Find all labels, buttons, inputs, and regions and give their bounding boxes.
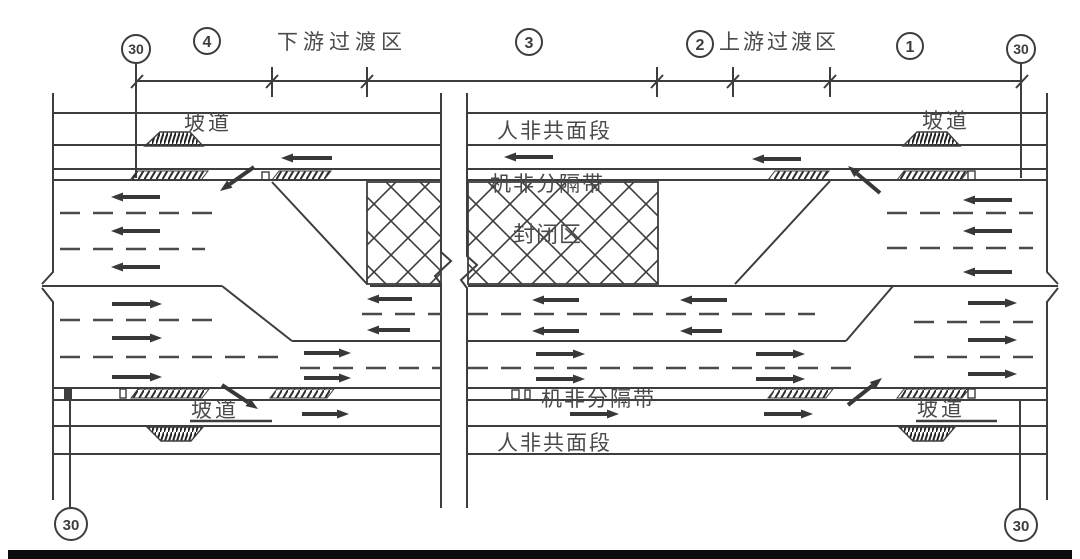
speed-limit-sign-bottom-right: 30 (1005, 509, 1037, 541)
traffic-arrow (857, 174, 880, 193)
traffic-arrow-head (1005, 299, 1017, 308)
svg-text:30: 30 (1013, 518, 1030, 535)
closed-area-taper-downstream (272, 182, 367, 284)
svg-text:30: 30 (128, 41, 144, 57)
svg-text:3: 3 (525, 35, 534, 52)
downstream-transition-label: 下游过渡区 (277, 31, 407, 54)
svg-text:30: 30 (1013, 41, 1029, 57)
traffic-arrow-head (963, 268, 975, 277)
motor-nonmotor-divider-label-top: 机非分隔带 (490, 173, 605, 196)
traffic-arrow-head (793, 350, 805, 359)
ramp-label-top-left: 坡道 (184, 112, 232, 135)
diagram-canvas: 30 4 3 2 1 30 30 30 (0, 0, 1080, 559)
closed-area-label: 封闭区 (513, 222, 582, 247)
svg-text:4: 4 (203, 34, 212, 51)
traffic-arrow-head (532, 296, 544, 305)
traffic-arrow-head (573, 375, 585, 384)
traffic-arrow-head (532, 327, 544, 336)
traffic-arrow-head (150, 300, 162, 309)
traffic-arrow-head (367, 295, 379, 304)
traffic-arrow-head (752, 155, 764, 164)
ramp-bottom-left (147, 427, 203, 441)
traffic-arrow-head (963, 196, 975, 205)
bottom-bar (8, 550, 1072, 559)
ped-nonmotor-shared-label-top: 人非共面段 (497, 120, 612, 143)
closed-area-hatch-left (367, 182, 441, 284)
motor-nonmotor-divider-label-bottom: 机非分隔带 (541, 388, 656, 411)
zone-marker-1: 1 (897, 33, 923, 59)
traffic-arrow-head (367, 326, 379, 335)
traffic-arrow-head (573, 350, 585, 359)
svg-text:1: 1 (906, 39, 915, 56)
traffic-arrow-head (111, 263, 123, 272)
barrier-end-block (64, 389, 72, 399)
break-lines (435, 93, 477, 508)
speed-limit-sign-bottom-left: 30 (55, 508, 87, 540)
ramp-top-right (903, 132, 960, 146)
speed-limit-sign-top-left: 30 (122, 35, 150, 63)
ramp-label-bottom-right: 坡道 (917, 398, 965, 421)
traffic-arrow-head (339, 374, 351, 383)
traffic-arrow-head (1005, 370, 1017, 379)
zone-marker-3: 3 (516, 29, 542, 55)
traffic-arrow-head (504, 153, 516, 162)
traffic-arrow-head (801, 410, 813, 419)
traffic-arrow-head (111, 227, 123, 236)
ramp-label-top-right: 坡道 (922, 110, 970, 133)
zone-marker-4: 4 (194, 28, 220, 54)
ramp-label-bottom-left: 坡道 (191, 399, 239, 422)
traffic-arrow-head (281, 154, 293, 163)
traffic-arrow-head (150, 334, 162, 343)
closed-area-taper-upstream (735, 181, 830, 284)
ramp-bottom-right (899, 427, 955, 441)
speed-limit-sign-top-right: 30 (1007, 35, 1035, 63)
traffic-arrow-head (1005, 336, 1017, 345)
traffic-arrow-head (339, 349, 351, 358)
traffic-arrow-head (150, 373, 162, 382)
svg-text:30: 30 (63, 517, 80, 534)
zone-marker-2: 2 (687, 31, 713, 57)
svg-text:2: 2 (696, 37, 705, 54)
dimension-line (131, 67, 1028, 97)
traffic-arrow-head (680, 327, 692, 336)
upstream-transition-label: 上游过渡区 (719, 31, 839, 54)
traffic-arrow-head (337, 410, 349, 419)
work-zone-diagram: 30 4 3 2 1 30 30 30 (0, 0, 1080, 559)
traffic-arrow-head (680, 296, 692, 305)
traffic-arrow-head (111, 193, 123, 202)
traffic-arrow-head (963, 227, 975, 236)
ped-nonmotor-shared-label-bottom: 人非共面段 (497, 432, 612, 455)
traffic-arrow-head (793, 375, 805, 384)
